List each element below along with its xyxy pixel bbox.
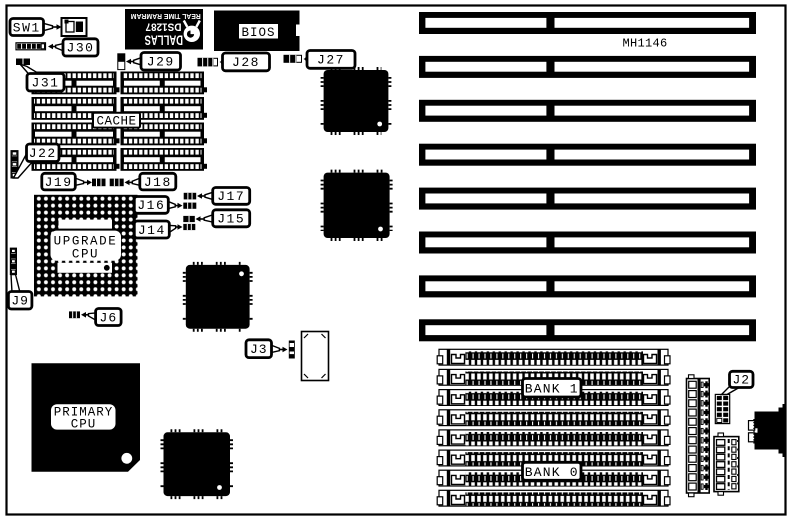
svg-text:CPU: CPU: [72, 247, 99, 261]
svg-text:J14: J14: [138, 223, 166, 238]
svg-text:MH1146: MH1146: [623, 37, 668, 51]
svg-text:BANK 0: BANK 0: [525, 465, 579, 480]
svg-text:DALLAS: DALLAS: [145, 32, 184, 47]
svg-text:SW1: SW1: [13, 20, 41, 35]
svg-text:J27: J27: [317, 53, 345, 68]
svg-text:CACHE: CACHE: [96, 115, 136, 129]
svg-text:BIOS: BIOS: [241, 26, 275, 40]
svg-text:J29: J29: [147, 55, 175, 70]
svg-text:J6: J6: [100, 310, 118, 325]
svg-text:J28: J28: [232, 55, 260, 70]
svg-text:J9: J9: [11, 294, 29, 309]
svg-text:J31: J31: [32, 76, 60, 91]
svg-text:J22: J22: [29, 146, 57, 161]
svg-text:BANK 1: BANK 1: [525, 381, 579, 396]
svg-text:J2: J2: [732, 373, 750, 388]
svg-text:CPU: CPU: [71, 417, 97, 431]
svg-text:J3: J3: [250, 342, 268, 357]
svg-text:DS1287: DS1287: [146, 20, 182, 32]
svg-text:J15: J15: [217, 212, 245, 227]
svg-text:J18: J18: [144, 175, 172, 190]
svg-text:J17: J17: [217, 189, 245, 204]
svg-text:J16: J16: [137, 198, 165, 213]
svg-text:J30: J30: [67, 41, 95, 56]
svg-text:J19: J19: [45, 175, 73, 190]
svg-text:REAL TIME RAMRAM: REAL TIME RAMRAM: [131, 12, 201, 19]
